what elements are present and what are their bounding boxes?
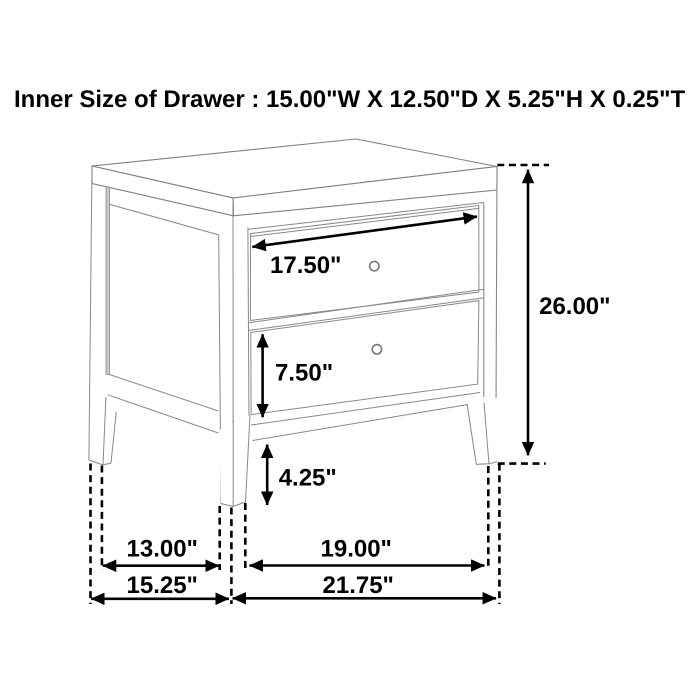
svg-text:Inner Size of Drawer : 15.00"W: Inner Size of Drawer : 15.00"W X 12.50"D… <box>14 86 685 113</box>
svg-text:7.50": 7.50" <box>275 360 333 387</box>
svg-text:19.00": 19.00" <box>321 536 392 563</box>
svg-text:15.25": 15.25" <box>127 572 198 599</box>
svg-text:21.75": 21.75" <box>323 572 394 599</box>
svg-text:13.00": 13.00" <box>127 536 198 563</box>
svg-text:4.25": 4.25" <box>279 465 337 492</box>
svg-text:17.50": 17.50" <box>270 252 341 279</box>
svg-text:26.00": 26.00" <box>539 293 610 320</box>
